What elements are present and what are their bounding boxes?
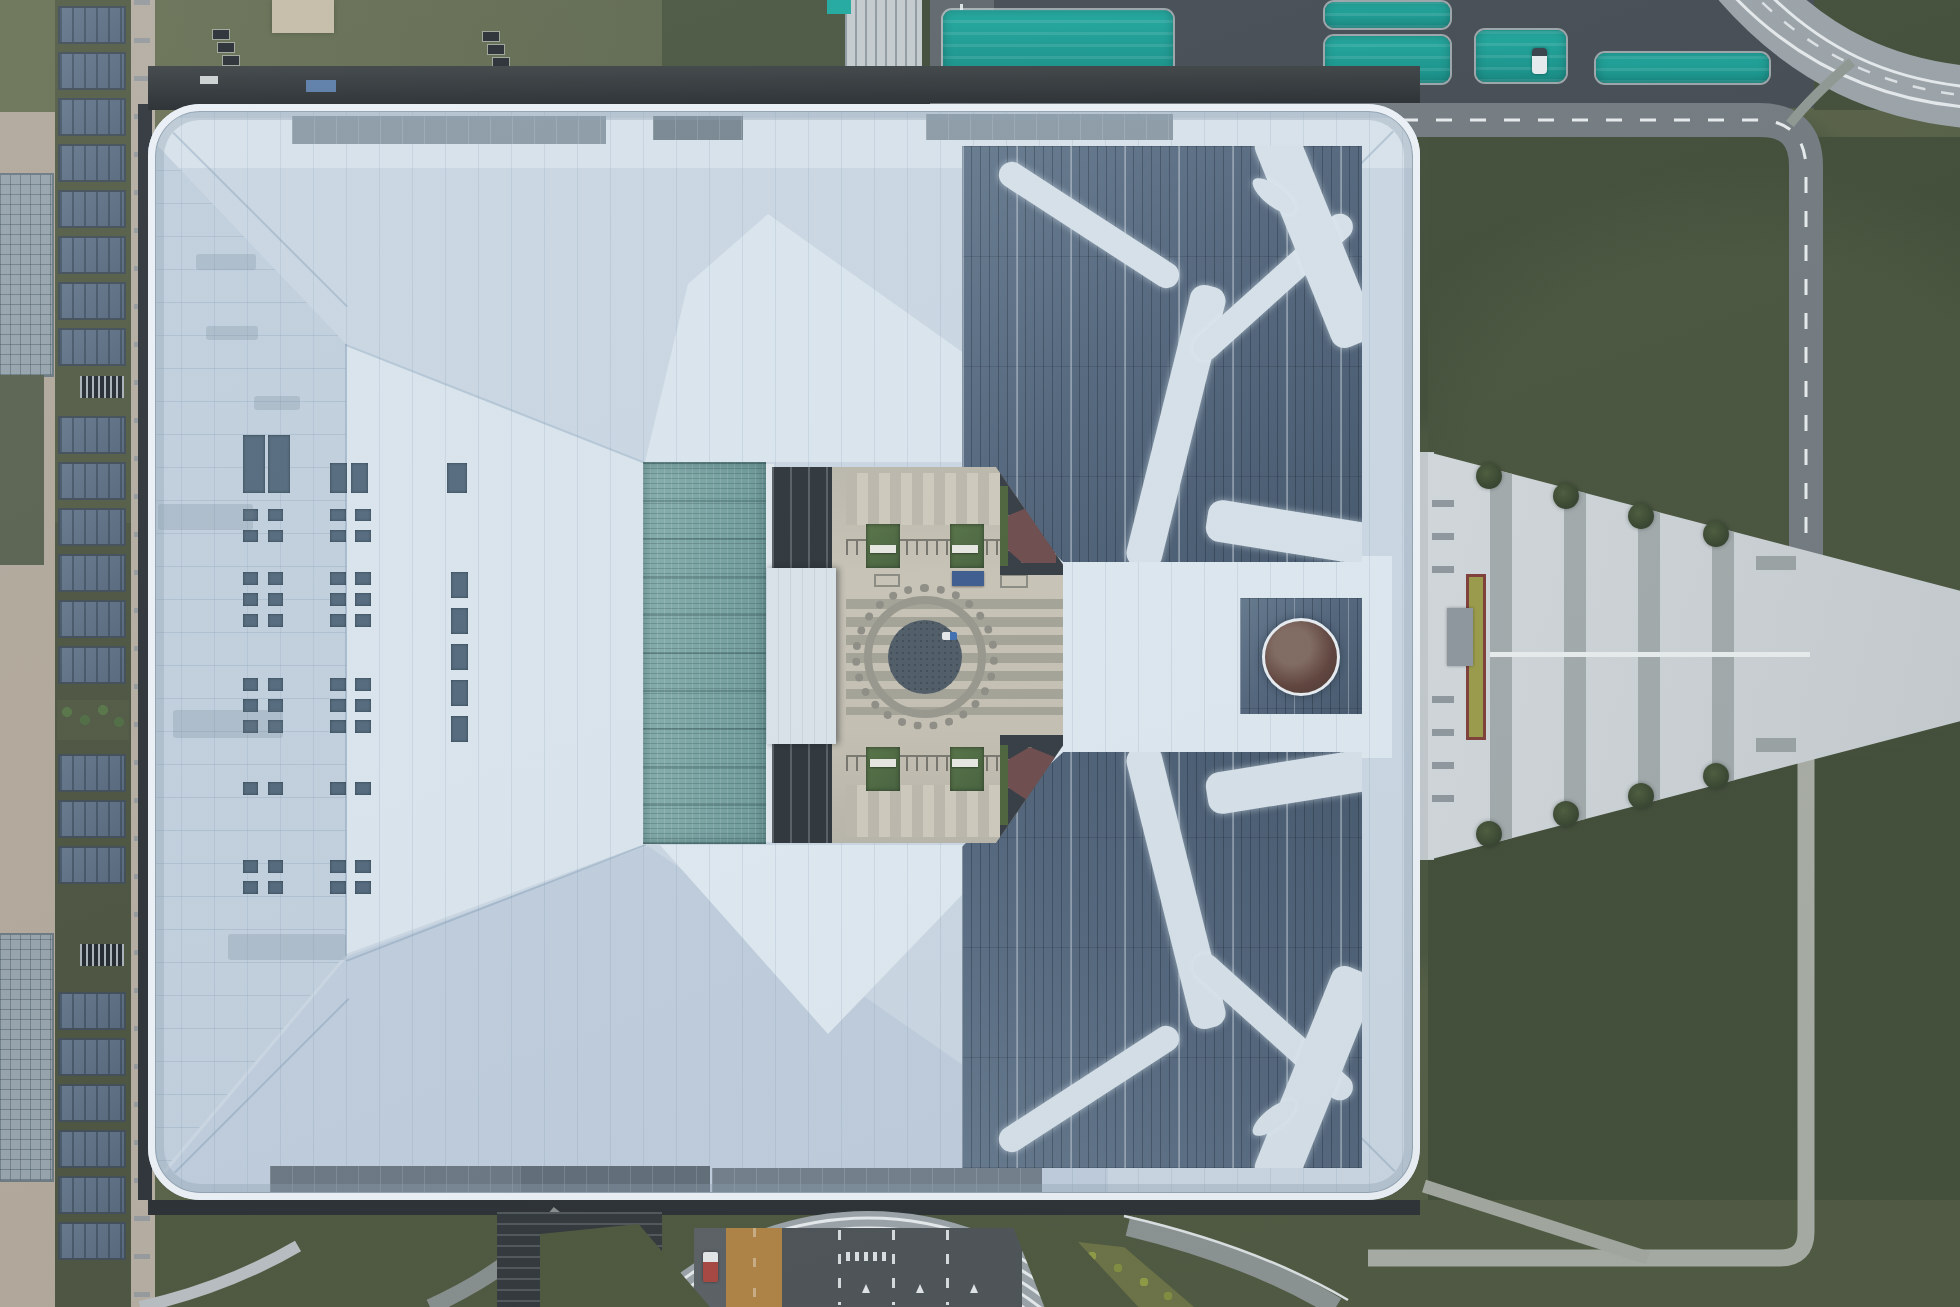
- plaza-tree: [1476, 821, 1502, 847]
- highway-ramp: [1742, 0, 1960, 98]
- plaza-center-line: [1490, 652, 1810, 657]
- plaza-tree: [1628, 783, 1654, 809]
- truck: [703, 1252, 718, 1282]
- lane-direction-arrow: [862, 1284, 870, 1293]
- plaza-stair-landing: [1756, 556, 1796, 570]
- lane-divider-dashed: [892, 1230, 895, 1305]
- plaza-bench-tick: [1432, 795, 1454, 802]
- plaza-stair-landing: [1756, 738, 1796, 752]
- plaza-tree: [1703, 521, 1729, 547]
- bus-lane-orange: [726, 1228, 782, 1307]
- lane-direction-arrow: [970, 1284, 978, 1293]
- main-building-roof: [148, 104, 1420, 1200]
- lane-divider-dashed: [838, 1230, 841, 1305]
- lane-divider-dashed: [946, 1230, 949, 1305]
- plaza-bench-tick: [1432, 566, 1454, 573]
- southwest-curved-path: [140, 1246, 298, 1307]
- plaza-bench-tick: [1432, 762, 1454, 769]
- plaza-tree: [1553, 801, 1579, 827]
- plaza-bench-tick: [1432, 500, 1454, 507]
- plaza-bench-tick: [1432, 533, 1454, 540]
- plaza-tree: [1476, 463, 1502, 489]
- plaza-bench-tick: [1432, 729, 1454, 736]
- lane-direction-arrow: [916, 1284, 924, 1293]
- roof-fascia-ring: [148, 104, 1420, 1200]
- crosswalk: [846, 1252, 886, 1261]
- underpass-lanes-asphalt: [782, 1228, 1022, 1307]
- plaza-bench-tick: [1432, 696, 1454, 703]
- aerial-photo-stage: [0, 0, 1960, 1307]
- plaza-kiosk-block: [1447, 608, 1473, 666]
- plaza-tree: [1628, 503, 1654, 529]
- corner-diagonal-path: [1424, 1186, 1648, 1258]
- plaza-tree: [1703, 763, 1729, 789]
- plaza-tree: [1553, 483, 1579, 509]
